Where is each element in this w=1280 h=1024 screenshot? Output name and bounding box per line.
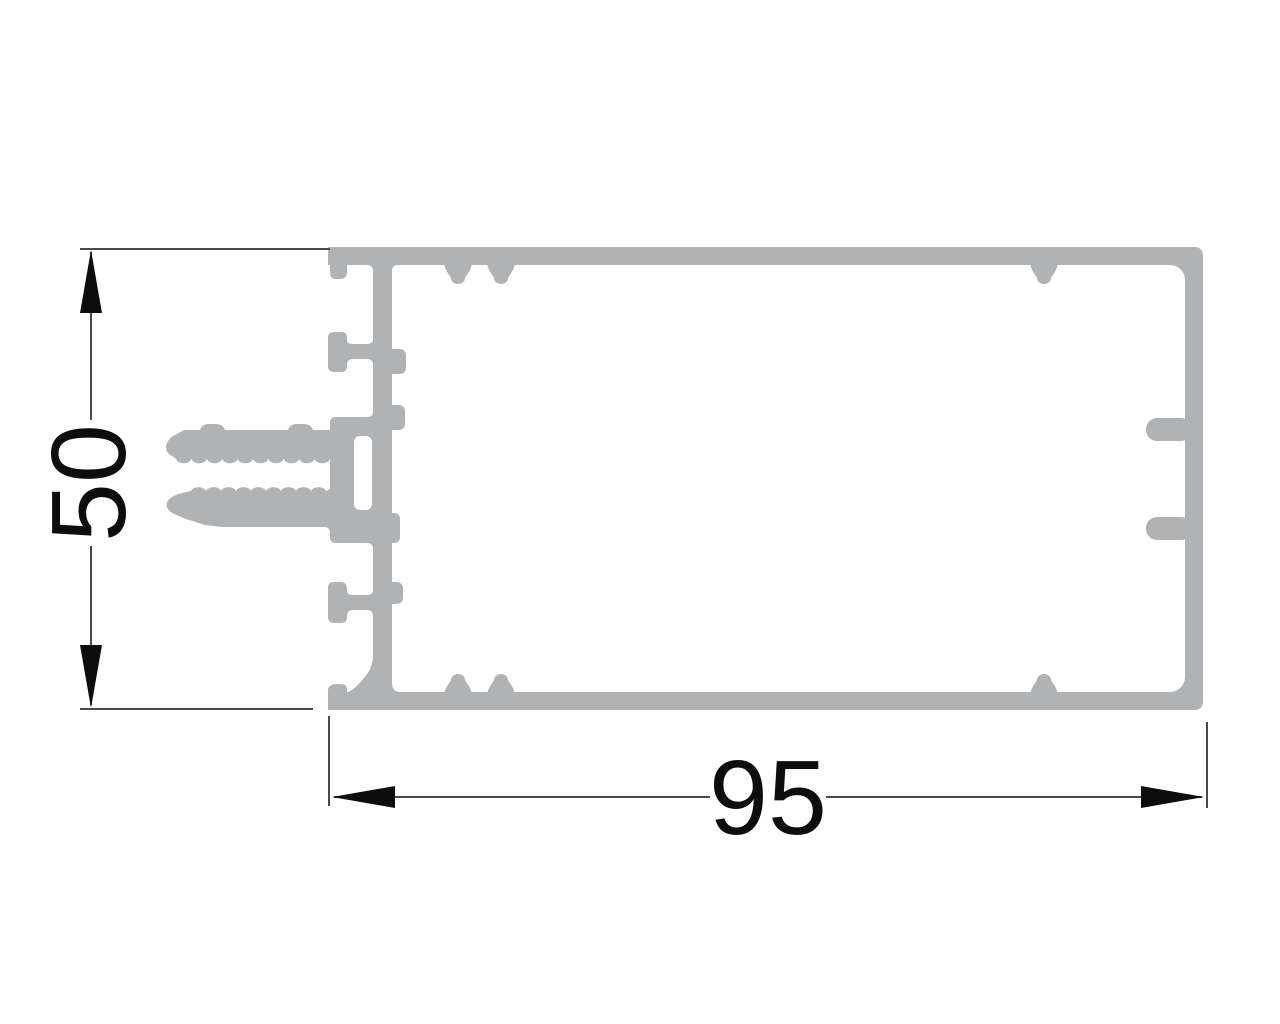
bottom-wall-drip-bump [444,674,472,694]
width-dimension-value: 95 [709,739,827,857]
arrowhead-down [80,645,102,708]
top-wall-drip-bump [487,264,515,284]
arrowhead-right [1141,786,1204,808]
top-wall-drip-bump [1030,264,1058,284]
bottom-wall-drip-bump [487,674,515,694]
top-wall-drip-bump [444,264,472,284]
height-dimension: 50 [30,249,330,709]
arrowhead-left [332,786,395,808]
profile-frame [328,247,1203,710]
technical-drawing-page: 50 95 [0,0,1280,1024]
height-dimension-value: 50 [30,424,148,542]
width-dimension: 95 [329,716,1207,857]
screw-port-hollow [354,436,372,510]
arrowhead-up [80,250,102,313]
bottom-wall-drip-bump [1030,674,1058,694]
technical-drawing-canvas: 50 95 [0,0,1280,1024]
profile-cross-section [166,247,1203,710]
right-wall-clip-tab [1146,517,1192,540]
profile-left-structure [166,247,430,710]
right-wall-clip-tab [1146,418,1192,441]
